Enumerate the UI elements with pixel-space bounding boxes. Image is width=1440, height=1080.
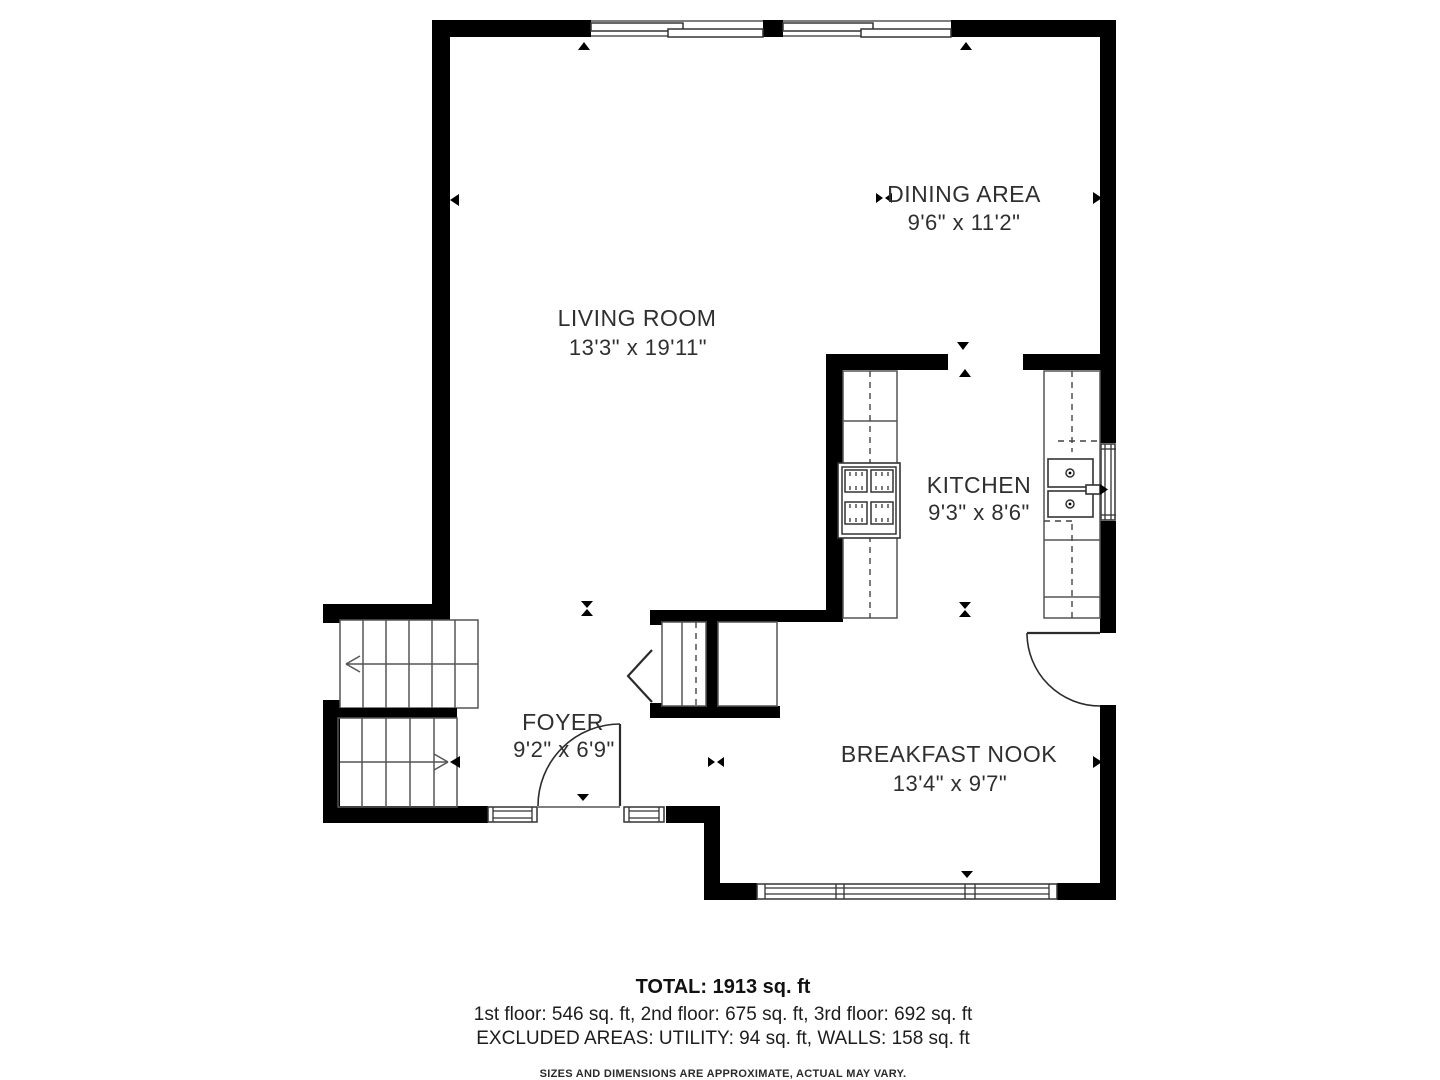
closet-interior — [662, 622, 777, 706]
wall-segment — [706, 618, 718, 710]
wall-segment — [1100, 705, 1116, 900]
marker-pair-icon — [708, 757, 715, 767]
marker-pair-icon — [581, 601, 593, 608]
room-label-nook: BREAKFAST NOOK — [841, 741, 1057, 767]
wall-segment — [650, 610, 843, 622]
wall-segment — [323, 604, 340, 623]
windows — [488, 21, 1116, 899]
room-label-kitchen: KITCHEN — [927, 472, 1031, 498]
marker-down-icon — [957, 342, 969, 350]
room-labels: LIVING ROOM 13'3" x 19'11" DINING AREA 9… — [513, 181, 1057, 796]
window-kitchen — [1100, 444, 1116, 520]
stove — [838, 463, 900, 538]
wall-segment — [763, 20, 783, 37]
summary-total: TOTAL: 1913 sq. ft — [636, 976, 811, 998]
floor-plan-page: LIVING ROOM 13'3" x 19'11" DINING AREA 9… — [0, 0, 1440, 1080]
marker-up-icon — [578, 42, 590, 50]
wall-segment — [432, 20, 591, 37]
marker-down-icon — [961, 871, 973, 878]
faucet-icon — [1086, 485, 1100, 494]
window-top-left — [591, 21, 763, 37]
sink — [1048, 459, 1108, 517]
wall-segment — [323, 604, 450, 620]
summary-excluded: EXCLUDED AREAS: UTILITY: 94 sq. ft, WALL… — [476, 1028, 970, 1049]
marker-pair-icon — [581, 609, 593, 616]
wall-segment — [650, 610, 662, 625]
wall-segment — [1023, 354, 1100, 370]
doors — [538, 633, 1100, 807]
wall-segment — [432, 20, 450, 620]
marker-pair-icon — [717, 757, 724, 767]
wall-segment — [826, 354, 948, 370]
marker-pair-icon — [959, 602, 971, 609]
direction-marker — [450, 756, 460, 768]
wall-segment — [1057, 883, 1116, 900]
room-dims-kitchen: 9'3" x 8'6" — [928, 500, 1030, 525]
room-dims-dining: 9'6" x 11'2" — [908, 210, 1021, 235]
window-top-right — [783, 21, 951, 37]
wall-segment — [1100, 20, 1116, 443]
closet-door — [628, 650, 652, 702]
stairs-down-run — [338, 718, 460, 807]
rear-door — [1027, 633, 1100, 706]
marker-up-icon — [959, 369, 971, 377]
marker-down-icon — [577, 794, 589, 801]
wall-segment — [951, 20, 1116, 37]
summary-disclaimer: SIZES AND DIMENSIONS ARE APPROXIMATE, AC… — [540, 1068, 907, 1080]
marker-pair-icon — [959, 610, 971, 617]
window-nook — [757, 884, 1057, 899]
summary-block: TOTAL: 1913 sq. ft 1st floor: 546 sq. ft… — [474, 976, 973, 1080]
stairs-up-run — [340, 620, 478, 708]
marker-pair-icon — [876, 193, 883, 203]
window-sidelite-left — [488, 807, 537, 822]
room-label-foyer: FOYER — [522, 709, 604, 735]
wall-segment — [704, 883, 757, 900]
marker-up-icon — [960, 42, 972, 50]
stair-divider-wall — [338, 708, 457, 718]
room-dims-living: 13'3" x 19'11" — [569, 335, 707, 360]
wall-segment — [323, 806, 488, 823]
marker-left-icon — [450, 194, 459, 206]
room-label-living: LIVING ROOM — [558, 305, 717, 331]
floor-plan-canvas: LIVING ROOM 13'3" x 19'11" DINING AREA 9… — [0, 0, 1440, 1080]
wall-segment — [650, 703, 662, 718]
room-dims-nook: 13'4" x 9'7" — [893, 771, 1007, 796]
room-label-dining: DINING AREA — [887, 181, 1041, 207]
summary-floors: 1st floor: 546 sq. ft, 2nd floor: 675 sq… — [474, 1004, 973, 1025]
room-dims-foyer: 9'2" x 6'9" — [513, 737, 615, 762]
walls — [323, 20, 1116, 900]
window-sidelite-right — [624, 807, 664, 822]
wall-segment — [1100, 521, 1116, 633]
